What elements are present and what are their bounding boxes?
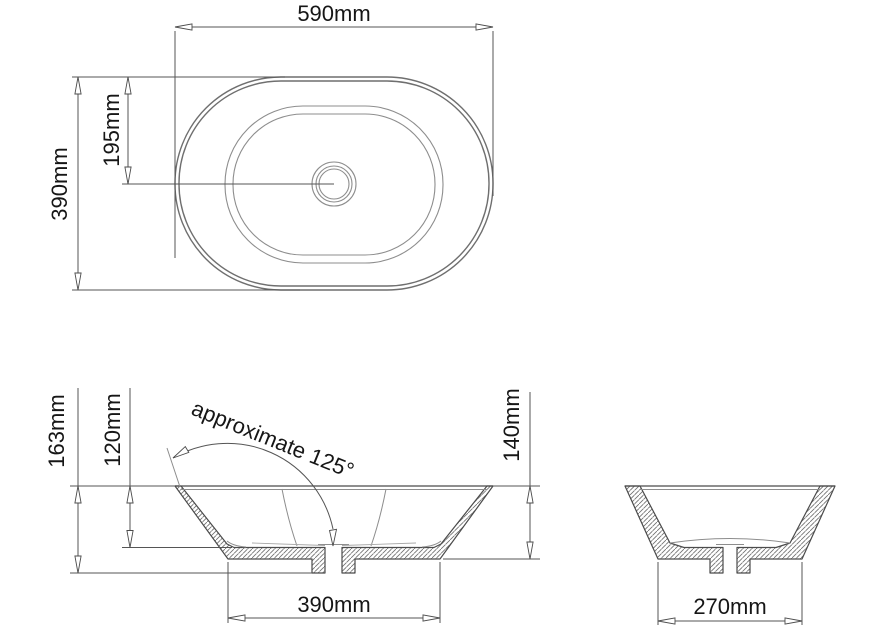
dim-label-390-plan: 390mm bbox=[47, 147, 72, 220]
technical-drawing-canvas: 590mm390mm195mm163mm120mmapproximate 125… bbox=[0, 0, 891, 629]
dim-label-120: 120mm bbox=[100, 393, 125, 466]
basin-dimension-drawing: 590mm390mm195mm163mm120mmapproximate 125… bbox=[0, 0, 891, 629]
dim-label-163: 163mm bbox=[44, 394, 69, 467]
dim-label-140: 140mm bbox=[499, 388, 524, 461]
dim-label-590: 590mm bbox=[297, 1, 370, 26]
dim-label-270: 270mm bbox=[693, 594, 766, 619]
dim-label-195: 195mm bbox=[99, 93, 124, 166]
dim-label-390-base: 390mm bbox=[297, 592, 370, 617]
